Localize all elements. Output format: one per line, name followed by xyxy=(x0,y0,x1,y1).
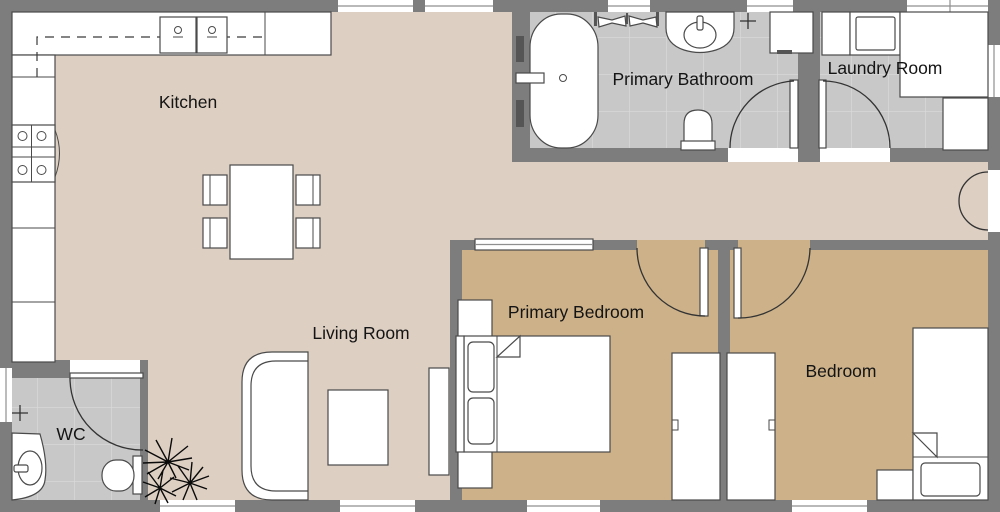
dining-chair[interactable] xyxy=(203,218,227,248)
label-living-room: Living Room xyxy=(312,323,409,343)
window-top-5[interactable] xyxy=(907,0,988,12)
primary-closet[interactable] xyxy=(672,353,720,500)
bathroom-sink[interactable] xyxy=(666,12,734,53)
doorway-bedroom xyxy=(738,240,810,250)
wc-sink[interactable] xyxy=(12,433,46,500)
dining-chair[interactable] xyxy=(203,175,227,205)
window-top-1[interactable] xyxy=(338,0,413,12)
label-wc: WC xyxy=(56,424,85,444)
laundry-counter-right-top[interactable] xyxy=(900,12,988,97)
laundry-counter-right-bottom[interactable] xyxy=(943,98,988,150)
stove[interactable] xyxy=(12,125,60,182)
primary-bed[interactable] xyxy=(456,336,610,452)
floor-plan-canvas: Kitchen Primary Bathroom Laundry Room Li… xyxy=(0,0,1000,512)
dining-table[interactable] xyxy=(230,165,293,259)
tv-unit[interactable] xyxy=(429,368,449,475)
pillow xyxy=(468,342,494,392)
washing-machine[interactable] xyxy=(850,12,900,55)
doorway-primary-bathroom xyxy=(728,148,798,162)
window-left-wc[interactable] xyxy=(0,368,12,422)
tub-valve xyxy=(516,36,524,62)
tub-faucet xyxy=(516,73,544,83)
laundry-cabinet[interactable] xyxy=(822,12,850,55)
pillow xyxy=(468,398,494,444)
window-bottom-2[interactable] xyxy=(340,500,415,512)
label-primary-bedroom: Primary Bedroom xyxy=(508,302,644,322)
nightstand[interactable] xyxy=(877,470,913,500)
doorway-entry xyxy=(988,170,1000,232)
dining-chair[interactable] xyxy=(296,175,320,205)
pillow xyxy=(921,463,980,496)
coffee-table[interactable] xyxy=(328,390,388,465)
doorway-primary-bedroom xyxy=(637,240,705,250)
bathroom-cabinet[interactable] xyxy=(770,12,813,54)
window-top-2[interactable] xyxy=(425,0,493,12)
tub-valve xyxy=(516,100,524,127)
toilet[interactable] xyxy=(681,110,715,150)
label-kitchen: Kitchen xyxy=(159,92,217,112)
dining-chair[interactable] xyxy=(296,218,320,248)
label-primary-bathroom: Primary Bathroom xyxy=(612,69,753,89)
floor-plan: Kitchen Primary Bathroom Laundry Room Li… xyxy=(0,0,1000,512)
label-laundry-room: Laundry Room xyxy=(828,58,943,78)
kitchen-counter-left[interactable] xyxy=(12,55,55,362)
window-right-laundry[interactable] xyxy=(988,45,1000,97)
window-interior-primary-bedroom[interactable] xyxy=(475,239,593,250)
wall-bathroom-left xyxy=(512,10,530,162)
headboard xyxy=(456,336,464,452)
window-bottom-3[interactable] xyxy=(527,500,600,512)
bedroom-closet[interactable] xyxy=(727,353,775,500)
nightstand[interactable] xyxy=(458,450,492,488)
window-top-4[interactable] xyxy=(747,0,793,12)
nightstand[interactable] xyxy=(458,300,492,338)
window-top-3[interactable] xyxy=(608,0,650,12)
sofa[interactable] xyxy=(242,352,308,500)
wall-exterior-top xyxy=(0,0,1000,12)
label-bedroom: Bedroom xyxy=(805,361,876,381)
window-bottom-1[interactable] xyxy=(160,500,235,512)
doorway-laundry xyxy=(820,148,890,162)
window-bottom-4[interactable] xyxy=(792,500,867,512)
kitchen-sink[interactable] xyxy=(160,17,227,53)
single-bed[interactable] xyxy=(913,328,988,500)
wall-exterior-left xyxy=(0,0,12,512)
